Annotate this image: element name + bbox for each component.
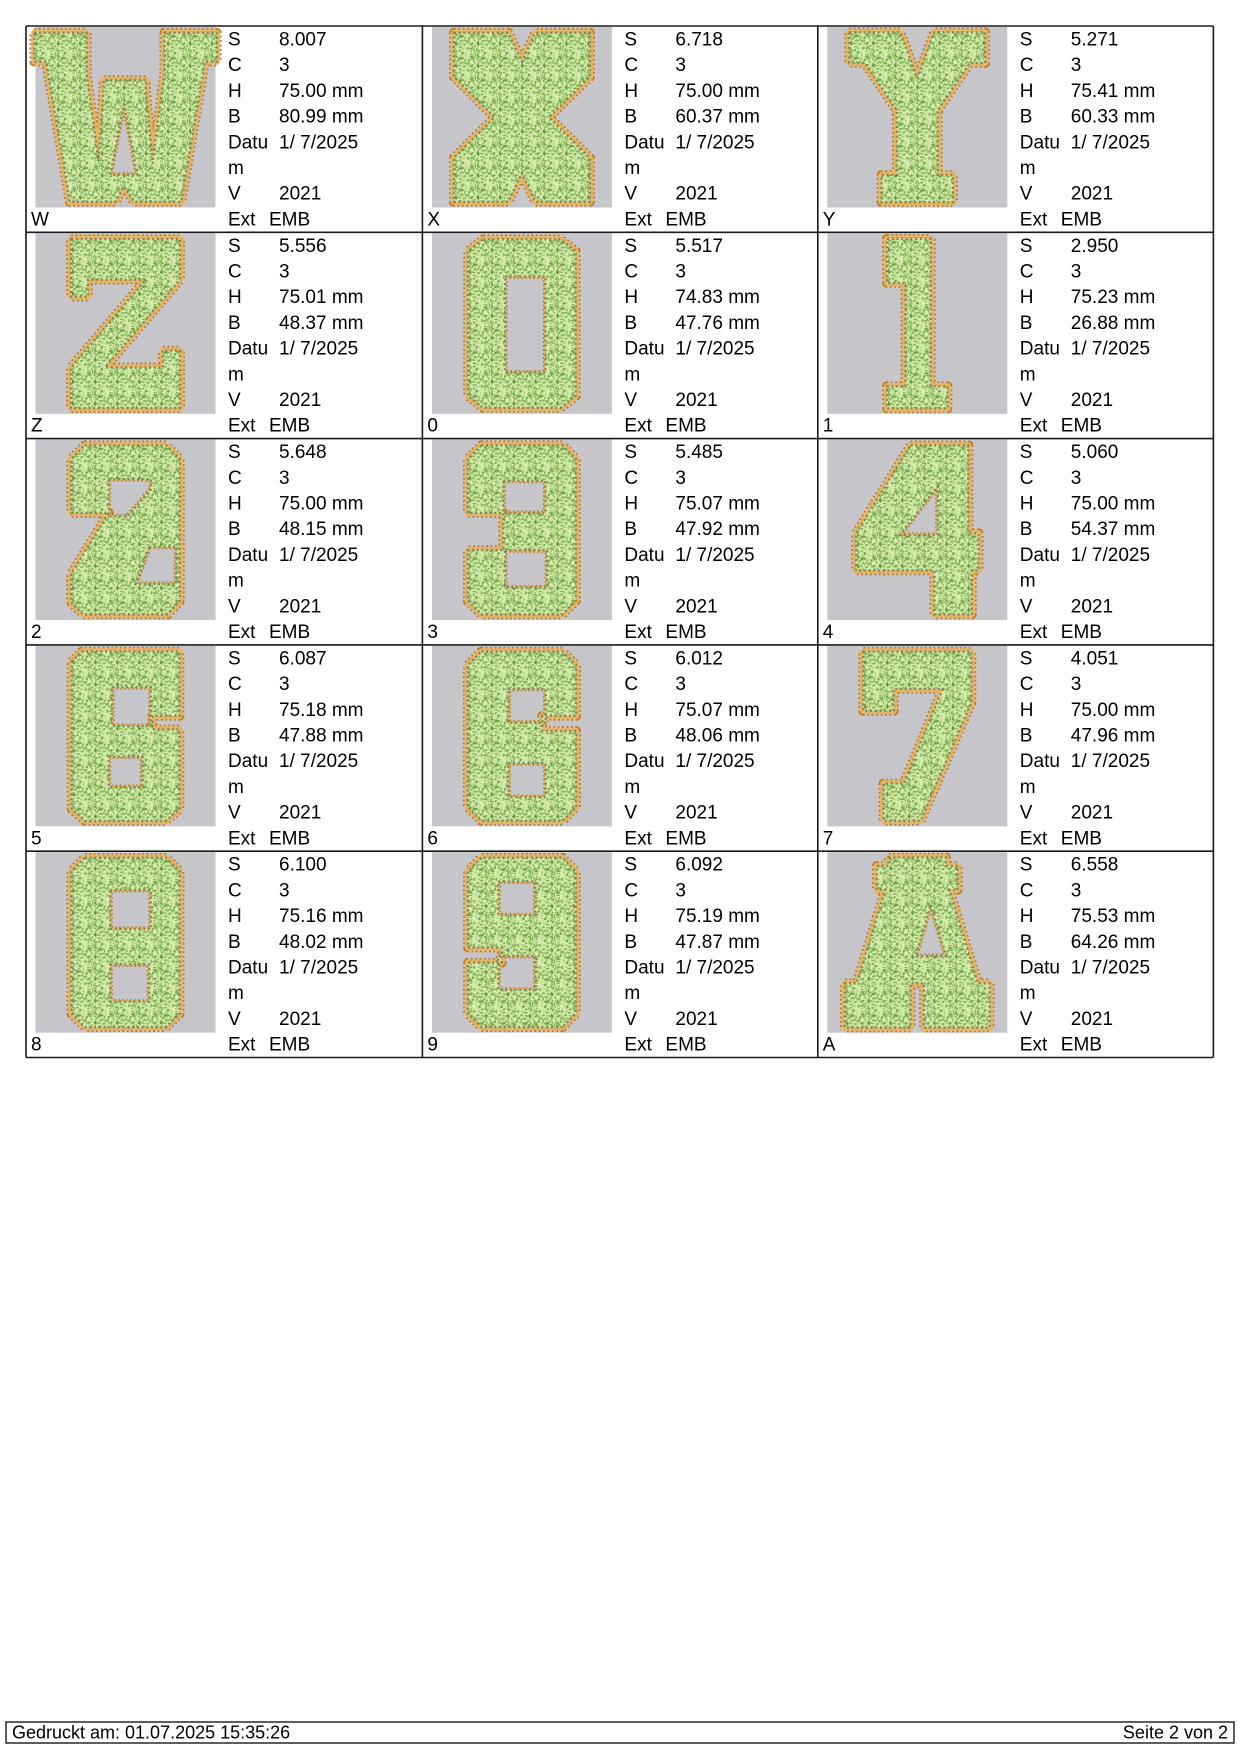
svg-text:75.07 mm: 75.07 mm (675, 700, 759, 721)
svg-text:H: H (1020, 700, 1034, 721)
svg-text:S: S (228, 648, 241, 669)
svg-text:B: B (624, 726, 637, 747)
svg-text:Seite 2 von 2: Seite 2 von 2 (1123, 1722, 1228, 1742)
svg-text:6.012: 6.012 (675, 648, 723, 669)
svg-text:C: C (228, 468, 242, 489)
svg-text:m: m (228, 158, 244, 179)
svg-text:3: 3 (1071, 880, 1082, 901)
svg-text:H: H (624, 81, 638, 102)
svg-text:Y: Y (823, 209, 836, 230)
svg-text:Datu: Datu (228, 958, 268, 979)
svg-text:C: C (624, 880, 638, 901)
svg-text:1/ 7/2025: 1/ 7/2025 (279, 339, 358, 360)
svg-text:Datu: Datu (228, 545, 268, 566)
svg-text:B: B (624, 107, 637, 128)
svg-text:2.950: 2.950 (1071, 236, 1119, 257)
svg-text:5: 5 (31, 828, 42, 849)
svg-text:Datu: Datu (1020, 132, 1060, 153)
svg-text:2021: 2021 (1071, 184, 1113, 205)
svg-text:H: H (228, 81, 242, 102)
svg-text:EMB: EMB (665, 828, 706, 849)
svg-text:H: H (228, 494, 242, 515)
svg-text:1/ 7/2025: 1/ 7/2025 (279, 545, 358, 566)
svg-text:48.06 mm: 48.06 mm (675, 726, 759, 747)
svg-text:X: X (427, 209, 440, 230)
svg-text:1/ 7/2025: 1/ 7/2025 (675, 958, 754, 979)
svg-text:C: C (1020, 55, 1034, 76)
svg-text:H: H (228, 906, 242, 927)
svg-text:m: m (624, 571, 640, 592)
svg-text:C: C (228, 674, 242, 695)
svg-text:H: H (228, 700, 242, 721)
svg-text:V: V (624, 1009, 637, 1030)
svg-text:S: S (624, 442, 637, 463)
svg-text:B: B (228, 932, 241, 953)
svg-text:75.16 mm: 75.16 mm (279, 906, 363, 927)
svg-text:47.76 mm: 47.76 mm (675, 313, 759, 334)
svg-text:6.092: 6.092 (675, 855, 723, 876)
svg-text:7: 7 (823, 828, 834, 849)
svg-text:Ext: Ext (624, 209, 652, 230)
svg-text:H: H (624, 906, 638, 927)
svg-text:Ext: Ext (624, 622, 652, 643)
svg-text:B: B (1020, 726, 1033, 747)
svg-text:C: C (1020, 880, 1034, 901)
svg-text:54.37 mm: 54.37 mm (1071, 519, 1155, 540)
svg-text:Ext: Ext (228, 209, 256, 230)
svg-text:3: 3 (1071, 468, 1082, 489)
svg-text:26.88 mm: 26.88 mm (1071, 313, 1155, 334)
svg-text:C: C (228, 55, 242, 76)
svg-text:75.41 mm: 75.41 mm (1071, 81, 1155, 102)
svg-text:m: m (228, 571, 244, 592)
svg-text:Datu: Datu (228, 132, 268, 153)
svg-text:1/ 7/2025: 1/ 7/2025 (675, 339, 754, 360)
svg-text:47.96 mm: 47.96 mm (1071, 726, 1155, 747)
svg-text:EMB: EMB (1061, 416, 1102, 437)
svg-text:S: S (228, 236, 241, 257)
svg-text:Datu: Datu (624, 545, 664, 566)
svg-text:B: B (624, 313, 637, 334)
svg-text:1/ 7/2025: 1/ 7/2025 (675, 132, 754, 153)
svg-text:Ext: Ext (1020, 622, 1048, 643)
svg-text:1/ 7/2025: 1/ 7/2025 (279, 751, 358, 772)
svg-text:Ext: Ext (228, 622, 256, 643)
svg-text:Datu: Datu (624, 958, 664, 979)
svg-text:B: B (228, 107, 241, 128)
svg-text:C: C (1020, 262, 1034, 283)
svg-text:EMB: EMB (1061, 209, 1102, 230)
svg-text:5.271: 5.271 (1071, 30, 1119, 51)
svg-text:5.556: 5.556 (279, 236, 327, 257)
svg-text:Ext: Ext (228, 828, 256, 849)
svg-text:6: 6 (427, 828, 438, 849)
svg-text:Ext: Ext (624, 1035, 652, 1056)
svg-text:S: S (228, 442, 241, 463)
svg-text:1: 1 (823, 416, 834, 437)
svg-text:1/ 7/2025: 1/ 7/2025 (675, 751, 754, 772)
svg-text:S: S (1020, 648, 1033, 669)
svg-text:V: V (228, 596, 241, 617)
svg-text:W: W (31, 209, 49, 230)
svg-text:Datu: Datu (1020, 958, 1060, 979)
svg-text:80.99 mm: 80.99 mm (279, 107, 363, 128)
svg-text:H: H (624, 494, 638, 515)
svg-text:60.37 mm: 60.37 mm (675, 107, 759, 128)
svg-text:C: C (624, 262, 638, 283)
svg-text:6.100: 6.100 (279, 855, 327, 876)
svg-text:75.01 mm: 75.01 mm (279, 287, 363, 308)
svg-text:5.517: 5.517 (675, 236, 723, 257)
svg-text:Datu: Datu (1020, 339, 1060, 360)
svg-text:B: B (228, 519, 241, 540)
svg-text:B: B (228, 726, 241, 747)
svg-text:V: V (624, 184, 637, 205)
svg-text:4.051: 4.051 (1071, 648, 1119, 669)
svg-text:2021: 2021 (279, 390, 321, 411)
svg-text:3: 3 (427, 622, 438, 643)
svg-text:EMB: EMB (665, 1035, 706, 1056)
svg-text:2021: 2021 (1071, 596, 1113, 617)
svg-text:1/ 7/2025: 1/ 7/2025 (1071, 545, 1150, 566)
svg-text:V: V (228, 390, 241, 411)
svg-text:S: S (624, 855, 637, 876)
svg-text:Ext: Ext (624, 416, 652, 437)
svg-text:75.23 mm: 75.23 mm (1071, 287, 1155, 308)
svg-text:S: S (1020, 855, 1033, 876)
svg-text:2021: 2021 (1071, 1009, 1113, 1030)
svg-text:m: m (1020, 158, 1036, 179)
svg-text:75.00 mm: 75.00 mm (1071, 700, 1155, 721)
svg-text:47.88 mm: 47.88 mm (279, 726, 363, 747)
svg-text:Z: Z (31, 416, 43, 437)
svg-text:Datu: Datu (1020, 751, 1060, 772)
svg-text:2: 2 (31, 622, 42, 643)
svg-text:5.060: 5.060 (1071, 442, 1119, 463)
svg-text:3: 3 (675, 55, 686, 76)
svg-text:2021: 2021 (279, 184, 321, 205)
svg-text:S: S (624, 236, 637, 257)
svg-text:1/ 7/2025: 1/ 7/2025 (1071, 339, 1150, 360)
svg-text:48.15 mm: 48.15 mm (279, 519, 363, 540)
svg-text:EMB: EMB (1061, 1035, 1102, 1056)
svg-text:60.33 mm: 60.33 mm (1071, 107, 1155, 128)
svg-text:m: m (1020, 364, 1036, 385)
svg-text:3: 3 (279, 880, 290, 901)
svg-text:3: 3 (675, 880, 686, 901)
svg-text:C: C (228, 880, 242, 901)
svg-text:EMB: EMB (1061, 828, 1102, 849)
svg-text:1/ 7/2025: 1/ 7/2025 (279, 958, 358, 979)
svg-text:2021: 2021 (675, 184, 717, 205)
svg-text:0: 0 (427, 416, 438, 437)
svg-text:4: 4 (823, 622, 834, 643)
svg-text:1/ 7/2025: 1/ 7/2025 (675, 545, 754, 566)
svg-text:47.87 mm: 47.87 mm (675, 932, 759, 953)
svg-text:EMB: EMB (665, 622, 706, 643)
svg-text:B: B (624, 519, 637, 540)
svg-text:C: C (624, 55, 638, 76)
svg-text:B: B (1020, 932, 1033, 953)
svg-text:V: V (1020, 184, 1033, 205)
svg-text:9: 9 (427, 1035, 438, 1056)
svg-text:m: m (1020, 571, 1036, 592)
svg-text:m: m (1020, 777, 1036, 798)
svg-text:Gedruckt am: 01.07.2025 15:35:: Gedruckt am: 01.07.2025 15:35:26 (12, 1722, 290, 1742)
svg-text:EMB: EMB (665, 416, 706, 437)
svg-text:2021: 2021 (675, 390, 717, 411)
svg-text:B: B (1020, 107, 1033, 128)
svg-text:75.00 mm: 75.00 mm (279, 81, 363, 102)
svg-text:1/ 7/2025: 1/ 7/2025 (1071, 958, 1150, 979)
svg-text:2021: 2021 (279, 596, 321, 617)
svg-text:Datu: Datu (624, 132, 664, 153)
svg-text:8.007: 8.007 (279, 30, 327, 51)
svg-text:5.648: 5.648 (279, 442, 327, 463)
svg-text:3: 3 (675, 674, 686, 695)
svg-text:3: 3 (279, 468, 290, 489)
svg-text:m: m (228, 364, 244, 385)
svg-text:Datu: Datu (624, 751, 664, 772)
svg-text:48.02 mm: 48.02 mm (279, 932, 363, 953)
svg-text:75.00 mm: 75.00 mm (1071, 494, 1155, 515)
svg-text:Ext: Ext (1020, 1035, 1048, 1056)
svg-text:48.37 mm: 48.37 mm (279, 313, 363, 334)
svg-text:C: C (228, 262, 242, 283)
svg-text:Ext: Ext (1020, 416, 1048, 437)
svg-text:6.087: 6.087 (279, 648, 327, 669)
svg-text:3: 3 (279, 55, 290, 76)
svg-text:H: H (1020, 287, 1034, 308)
svg-text:EMB: EMB (269, 416, 310, 437)
svg-text:3: 3 (279, 674, 290, 695)
svg-text:5.485: 5.485 (675, 442, 723, 463)
svg-text:S: S (624, 648, 637, 669)
svg-text:75.07 mm: 75.07 mm (675, 494, 759, 515)
svg-text:EMB: EMB (269, 1035, 310, 1056)
svg-text:75.19 mm: 75.19 mm (675, 906, 759, 927)
svg-text:Datu: Datu (1020, 545, 1060, 566)
svg-text:Ext: Ext (228, 1035, 256, 1056)
svg-text:S: S (624, 30, 637, 51)
svg-text:Datu: Datu (228, 339, 268, 360)
svg-text:C: C (1020, 674, 1034, 695)
svg-text:74.83 mm: 74.83 mm (675, 287, 759, 308)
svg-text:3: 3 (675, 468, 686, 489)
svg-text:H: H (1020, 494, 1034, 515)
svg-text:1/ 7/2025: 1/ 7/2025 (1071, 132, 1150, 153)
svg-text:EMB: EMB (269, 622, 310, 643)
svg-text:EMB: EMB (269, 828, 310, 849)
svg-text:8: 8 (31, 1035, 42, 1056)
svg-text:m: m (1020, 983, 1036, 1004)
svg-text:Ext: Ext (1020, 828, 1048, 849)
svg-text:75.00 mm: 75.00 mm (675, 81, 759, 102)
svg-text:S: S (1020, 30, 1033, 51)
svg-text:3: 3 (1071, 55, 1082, 76)
svg-text:V: V (228, 184, 241, 205)
svg-text:S: S (1020, 236, 1033, 257)
svg-text:S: S (228, 30, 241, 51)
svg-text:m: m (624, 777, 640, 798)
svg-text:B: B (1020, 519, 1033, 540)
svg-text:m: m (228, 983, 244, 1004)
svg-text:H: H (1020, 906, 1034, 927)
svg-text:3: 3 (279, 262, 290, 283)
svg-text:A: A (823, 1035, 836, 1056)
svg-text:3: 3 (1071, 262, 1082, 283)
svg-text:H: H (624, 700, 638, 721)
svg-text:V: V (1020, 1009, 1033, 1030)
svg-text:2021: 2021 (675, 1009, 717, 1030)
svg-text:C: C (624, 468, 638, 489)
svg-text:Ext: Ext (624, 828, 652, 849)
svg-text:m: m (624, 364, 640, 385)
svg-text:1/ 7/2025: 1/ 7/2025 (1071, 751, 1150, 772)
svg-text:B: B (228, 313, 241, 334)
svg-text:EMB: EMB (1061, 622, 1102, 643)
svg-text:Ext: Ext (228, 416, 256, 437)
svg-text:C: C (1020, 468, 1034, 489)
svg-text:S: S (228, 855, 241, 876)
svg-text:2021: 2021 (675, 596, 717, 617)
svg-text:3: 3 (675, 262, 686, 283)
svg-text:47.92 mm: 47.92 mm (675, 519, 759, 540)
svg-text:S: S (1020, 442, 1033, 463)
svg-text:V: V (228, 803, 241, 824)
svg-text:EMB: EMB (269, 209, 310, 230)
svg-text:V: V (1020, 803, 1033, 824)
svg-text:m: m (624, 158, 640, 179)
svg-text:1/ 7/2025: 1/ 7/2025 (279, 132, 358, 153)
svg-text:75.53 mm: 75.53 mm (1071, 906, 1155, 927)
svg-text:75.18 mm: 75.18 mm (279, 700, 363, 721)
svg-text:75.00 mm: 75.00 mm (279, 494, 363, 515)
svg-text:V: V (624, 596, 637, 617)
svg-text:V: V (624, 803, 637, 824)
svg-text:V: V (624, 390, 637, 411)
svg-text:H: H (228, 287, 242, 308)
svg-text:H: H (624, 287, 638, 308)
svg-text:2021: 2021 (279, 803, 321, 824)
svg-text:m: m (624, 983, 640, 1004)
svg-text:H: H (1020, 81, 1034, 102)
svg-text:Datu: Datu (624, 339, 664, 360)
svg-text:Datu: Datu (228, 751, 268, 772)
svg-text:2021: 2021 (1071, 803, 1113, 824)
svg-text:V: V (1020, 390, 1033, 411)
svg-text:B: B (1020, 313, 1033, 334)
svg-text:6.718: 6.718 (675, 30, 723, 51)
svg-text:2021: 2021 (279, 1009, 321, 1030)
svg-text:V: V (228, 1009, 241, 1030)
svg-text:Ext: Ext (1020, 209, 1048, 230)
svg-text:B: B (624, 932, 637, 953)
svg-text:3: 3 (1071, 674, 1082, 695)
svg-text:V: V (1020, 596, 1033, 617)
svg-text:64.26 mm: 64.26 mm (1071, 932, 1155, 953)
svg-text:C: C (624, 674, 638, 695)
svg-text:EMB: EMB (665, 209, 706, 230)
svg-text:2021: 2021 (1071, 390, 1113, 411)
svg-text:2021: 2021 (675, 803, 717, 824)
svg-text:m: m (228, 777, 244, 798)
svg-text:6.558: 6.558 (1071, 855, 1119, 876)
